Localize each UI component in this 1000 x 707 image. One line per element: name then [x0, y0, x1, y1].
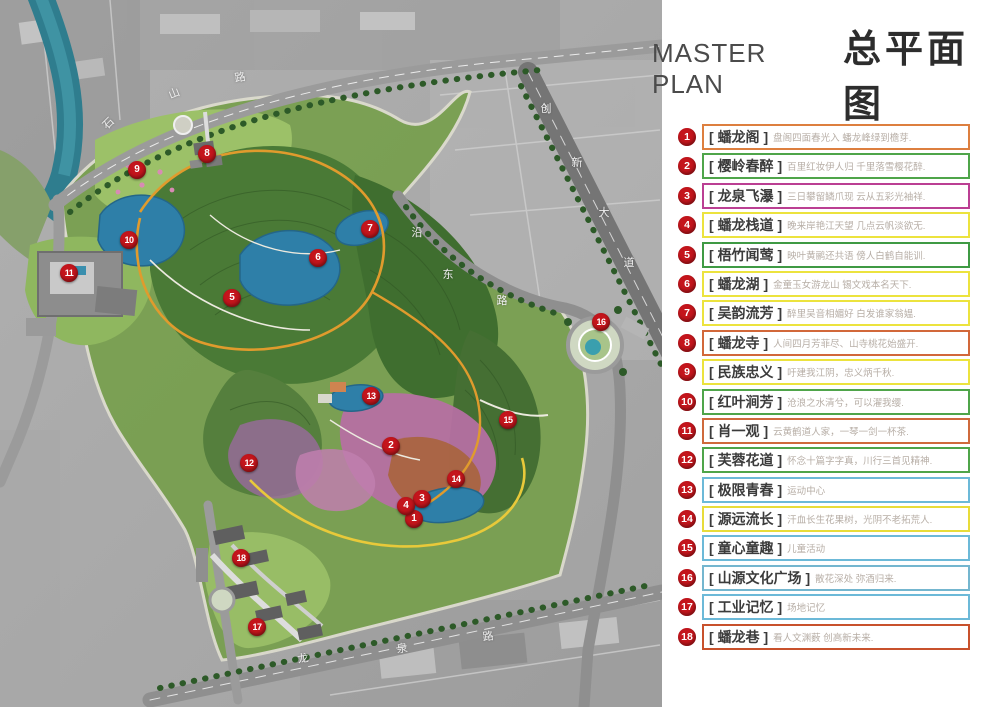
- legend-item-desc: 盘阁四面春光入 蟠龙峰绿到檐芽.: [773, 130, 911, 144]
- legend-item-name: 童心童趣: [709, 538, 782, 558]
- legend-item: 3龙泉飞瀑三日攀留鳞爪现 云从五彩光袖祥.: [678, 183, 970, 209]
- legend-item-name: 蟠龙阁: [709, 127, 768, 147]
- legend-item-desc: 运动中心: [787, 483, 825, 497]
- legend-item-name: 红叶涧芳: [709, 392, 782, 412]
- legend: 1蟠龙阁盘阁四面春光入 蟠龙峰绿到檐芽.2樱岭春醉百里红妆伊人归 千里落雪樱花醉…: [678, 124, 970, 653]
- site-plan-illustration: [0, 0, 662, 707]
- legend-item: 8蟠龙寺人间四月芳菲尽、山寺桃花始盛开.: [678, 330, 970, 356]
- legend-item-box: 肖一观云黄鹤道人家，一琴一剑一杯茶.: [702, 418, 970, 444]
- legend-item: 13极限青春运动中心: [678, 477, 970, 503]
- legend-item-desc: 三日攀留鳞爪现 云从五彩光袖祥.: [787, 189, 925, 203]
- legend-item-box: 蟠龙湖金童玉女游龙山 锡文戏本名天下.: [702, 271, 970, 297]
- legend-item-number: 4: [678, 216, 696, 234]
- legend-item-name: 芙蓉花道: [709, 450, 782, 470]
- legend-item-box: 蟠龙阁盘阁四面春光入 蟠龙峰绿到檐芽.: [702, 124, 970, 150]
- legend-item-number: 13: [678, 481, 696, 499]
- legend-item-box: 童心童趣儿童活动: [702, 535, 970, 561]
- legend-item-number: 12: [678, 451, 696, 469]
- legend-item: 2樱岭春醉百里红妆伊人归 千里落雪樱花醉.: [678, 153, 970, 179]
- legend-item-number: 5: [678, 246, 696, 264]
- legend-item-name: 蟠龙寺: [709, 333, 768, 353]
- legend-item-name: 吴韵流芳: [709, 303, 782, 323]
- legend-item-number: 16: [678, 569, 696, 587]
- legend-item: 14源远流长汗血长生花果树，光阴不老拓荒人.: [678, 506, 970, 532]
- legend-item-number: 6: [678, 275, 696, 293]
- legend-item: 16山源文化广场散花深处 弥酒归来.: [678, 565, 970, 591]
- legend-item-box: 源远流长汗血长生花果树，光阴不老拓荒人.: [702, 506, 970, 532]
- legend-item-box: 梧竹闻莺映叶黄鹂还共语 傍人白鹤自能训.: [702, 242, 970, 268]
- legend-item-desc: 云黄鹤道人家，一琴一剑一杯茶.: [773, 424, 909, 438]
- legend-item-box: 吴韵流芳醉里吴音相媚好 白发谁家翁媪.: [702, 300, 970, 326]
- legend-item: 12芙蓉花道怀念十篇字字真，川行三首见精神.: [678, 447, 970, 473]
- legend-item: 4蟠龙栈道晚来岸艳江天望 几点云帆淡欲无.: [678, 212, 970, 238]
- legend-item-name: 龙泉飞瀑: [709, 186, 782, 206]
- legend-item: 7吴韵流芳醉里吴音相媚好 白发谁家翁媪.: [678, 300, 970, 326]
- legend-item: 17工业记忆场地记忆: [678, 594, 970, 620]
- legend-item: 5梧竹闻莺映叶黄鹂还共语 傍人白鹤自能训.: [678, 242, 970, 268]
- legend-item: 15童心童趣儿童活动: [678, 535, 970, 561]
- legend-item-number: 17: [678, 598, 696, 616]
- legend-item: 6蟠龙湖金童玉女游龙山 锡文戏本名天下.: [678, 271, 970, 297]
- legend-item-number: 1: [678, 128, 696, 146]
- legend-item-box: 红叶涧芳沧浪之水清兮，可以濯我缨.: [702, 389, 970, 415]
- master-plan-poster: 石山路创新大道沿东路龙泉路 12345678910111213141516171…: [0, 0, 1000, 707]
- legend-item-box: 蟠龙栈道晚来岸艳江天望 几点云帆淡欲无.: [702, 212, 970, 238]
- legend-item-desc: 沧浪之水清兮，可以濯我缨.: [787, 395, 904, 409]
- legend-item-number: 18: [678, 628, 696, 646]
- legend-item-box: 樱岭春醉百里红妆伊人归 千里落雪樱花醉.: [702, 153, 970, 179]
- legend-item-desc: 醉里吴音相媚好 白发谁家翁媪.: [787, 306, 916, 320]
- legend-item-name: 山源文化广场: [709, 568, 810, 588]
- page-title-zh: 总平面图: [843, 18, 996, 128]
- legend-item-number: 2: [678, 157, 696, 175]
- legend-item-number: 8: [678, 334, 696, 352]
- legend-item-desc: 人间四月芳菲尽、山寺桃花始盛开.: [773, 336, 918, 350]
- legend-item: 10红叶涧芳沧浪之水清兮，可以濯我缨.: [678, 389, 970, 415]
- legend-item-number: 3: [678, 187, 696, 205]
- legend-item-number: 10: [678, 393, 696, 411]
- legend-item-desc: 映叶黄鹂还共语 傍人白鹤自能训.: [787, 248, 925, 262]
- legend-item-desc: 场地记忆: [787, 600, 825, 614]
- legend-item-box: 蟠龙巷看人文渊薮 创高新未来.: [702, 624, 970, 650]
- legend-item: 9民族忠义吁建我江阴，忠义炳千秋.: [678, 359, 970, 385]
- legend-item-desc: 汗血长生花果树，光阴不老拓荒人.: [787, 512, 932, 526]
- legend-item-name: 樱岭春醉: [709, 156, 782, 176]
- legend-item-desc: 百里红妆伊人归 千里落雪樱花醉.: [787, 159, 925, 173]
- legend-item-box: 工业记忆场地记忆: [702, 594, 970, 620]
- legend-item-desc: 看人文渊薮 创高新未来.: [773, 630, 873, 644]
- legend-item-name: 极限青春: [709, 480, 782, 500]
- page-title-en: MASTER PLAN: [652, 38, 829, 100]
- legend-item: 11肖一观云黄鹤道人家，一琴一剑一杯茶.: [678, 418, 970, 444]
- legend-item-desc: 儿童活动: [787, 541, 825, 555]
- legend-item-number: 11: [678, 422, 696, 440]
- header: MASTER PLAN 总平面图: [652, 18, 996, 128]
- legend-item-desc: 晚来岸艳江天望 几点云帆淡欲无.: [787, 218, 925, 232]
- legend-item-name: 肖一观: [709, 421, 768, 441]
- legend-item-name: 民族忠义: [709, 362, 782, 382]
- legend-item-desc: 散花深处 弥酒归来.: [815, 571, 896, 585]
- legend-item-name: 蟠龙栈道: [709, 215, 782, 235]
- legend-item-name: 梧竹闻莺: [709, 245, 782, 265]
- legend-item: 18蟠龙巷看人文渊薮 创高新未来.: [678, 624, 970, 650]
- legend-item-box: 极限青春运动中心: [702, 477, 970, 503]
- legend-item-name: 源远流长: [709, 509, 782, 529]
- legend-item: 1蟠龙阁盘阁四面春光入 蟠龙峰绿到檐芽.: [678, 124, 970, 150]
- legend-item-number: 14: [678, 510, 696, 528]
- legend-item-box: 山源文化广场散花深处 弥酒归来.: [702, 565, 970, 591]
- legend-item-name: 蟠龙湖: [709, 274, 768, 294]
- legend-item-box: 芙蓉花道怀念十篇字字真，川行三首见精神.: [702, 447, 970, 473]
- legend-item-desc: 吁建我江阴，忠义炳千秋.: [787, 365, 894, 379]
- legend-item-number: 15: [678, 539, 696, 557]
- legend-item-box: 蟠龙寺人间四月芳菲尽、山寺桃花始盛开.: [702, 330, 970, 356]
- legend-item-name: 蟠龙巷: [709, 627, 768, 647]
- legend-item-box: 民族忠义吁建我江阴，忠义炳千秋.: [702, 359, 970, 385]
- legend-item-number: 9: [678, 363, 696, 381]
- legend-item-box: 龙泉飞瀑三日攀留鳞爪现 云从五彩光袖祥.: [702, 183, 970, 209]
- legend-item-name: 工业记忆: [709, 597, 782, 617]
- legend-item-desc: 金童玉女游龙山 锡文戏本名天下.: [773, 277, 911, 291]
- site-plan-map: 石山路创新大道沿东路龙泉路 12345678910111213141516171…: [0, 0, 662, 707]
- legend-item-number: 7: [678, 304, 696, 322]
- legend-item-desc: 怀念十篇字字真，川行三首见精神.: [787, 453, 932, 467]
